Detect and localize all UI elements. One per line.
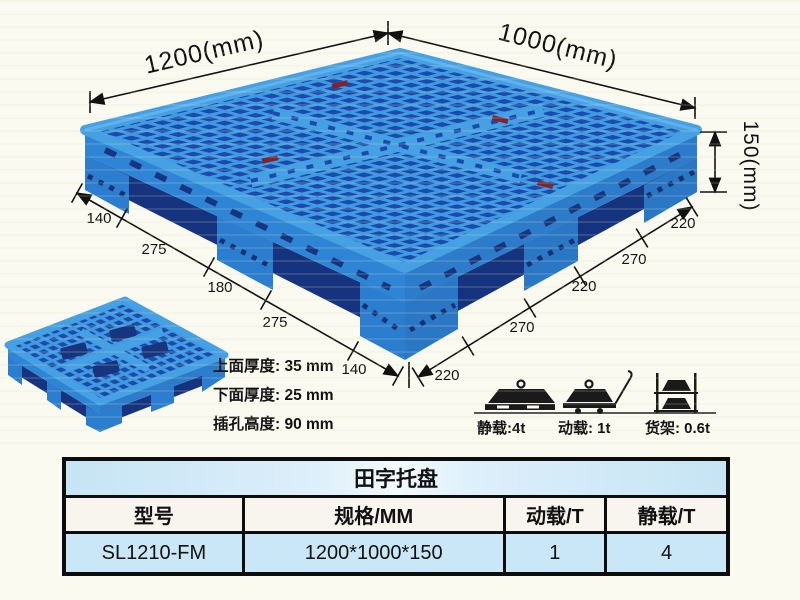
load-ratings: 静载:4t 动载: 1t 货架: 0.6t — [474, 371, 716, 437]
pallet-thumbnail — [8, 300, 225, 432]
pallet-datasheet: { "colors": { "pallet_blue": "#2E86D8", … — [0, 0, 800, 600]
col-header-static-load: 静载/T — [607, 498, 726, 534]
col-header-dynamic-load: 动载/T — [506, 498, 608, 534]
dim-label: 270 — [621, 251, 646, 268]
spec-table: 田字托盘 型号 规格/MM 动载/T 静载/T SL1210-FM 1200*1… — [62, 457, 730, 576]
dim-label: 270 — [509, 319, 534, 336]
dim-label: 220 — [434, 367, 459, 384]
dim-label-length: 1200(mm) — [142, 25, 267, 80]
cell-model: SL1210-FM — [66, 534, 245, 572]
dim-label-height: 150(mm) — [739, 120, 762, 211]
dim-label: 275 — [262, 314, 287, 331]
dim-label: 140 — [341, 361, 366, 378]
dim-label: 220 — [571, 278, 596, 295]
dim-label: 180 — [207, 279, 232, 296]
dim-label: 220 — [670, 215, 695, 232]
static-load-icon — [485, 381, 555, 411]
dynamic-load-icon — [563, 371, 632, 414]
dim-label: 140 — [86, 210, 111, 227]
thickness-notes: 上面厚度: 35 mm 下面厚度: 25 mm 插孔高度: 90 mm — [213, 356, 334, 433]
pallet-diagram-svg: 1200(mm) 1000(mm) 150(mm) 140 275 180 27… — [0, 0, 800, 455]
pallet-3d-view — [85, 53, 697, 360]
cell-static-load: 4 — [607, 534, 726, 572]
note-bottom-thickness: 下面厚度: 25 mm — [213, 385, 334, 404]
spec-table-grid: 型号 规格/MM 动载/T 静载/T SL1210-FM 1200*1000*1… — [66, 498, 726, 572]
dim-label: 275 — [141, 241, 166, 258]
pallet-illustration: 1200(mm) 1000(mm) 150(mm) 140 275 180 27… — [0, 0, 800, 455]
cell-spec: 1200*1000*150 — [245, 534, 506, 572]
note-top-thickness: 上面厚度: 35 mm — [213, 356, 334, 375]
note-fork-height: 插孔高度: 90 mm — [213, 414, 334, 433]
col-header-spec: 规格/MM — [245, 498, 506, 534]
rack-load-label: 货架: 0.6t — [645, 419, 710, 437]
dynamic-load-label: 动载: 1t — [558, 419, 611, 437]
rack-load-icon — [654, 373, 698, 413]
col-header-model: 型号 — [66, 498, 245, 534]
load-rating-labels: 静载:4t 动载: 1t 货架: 0.6t — [477, 419, 710, 437]
static-load-label: 静载:4t — [477, 419, 525, 437]
spec-table-title: 田字托盘 — [66, 461, 726, 498]
dim-label-width: 1000(mm) — [495, 18, 620, 75]
cell-dynamic-load: 1 — [506, 534, 608, 572]
